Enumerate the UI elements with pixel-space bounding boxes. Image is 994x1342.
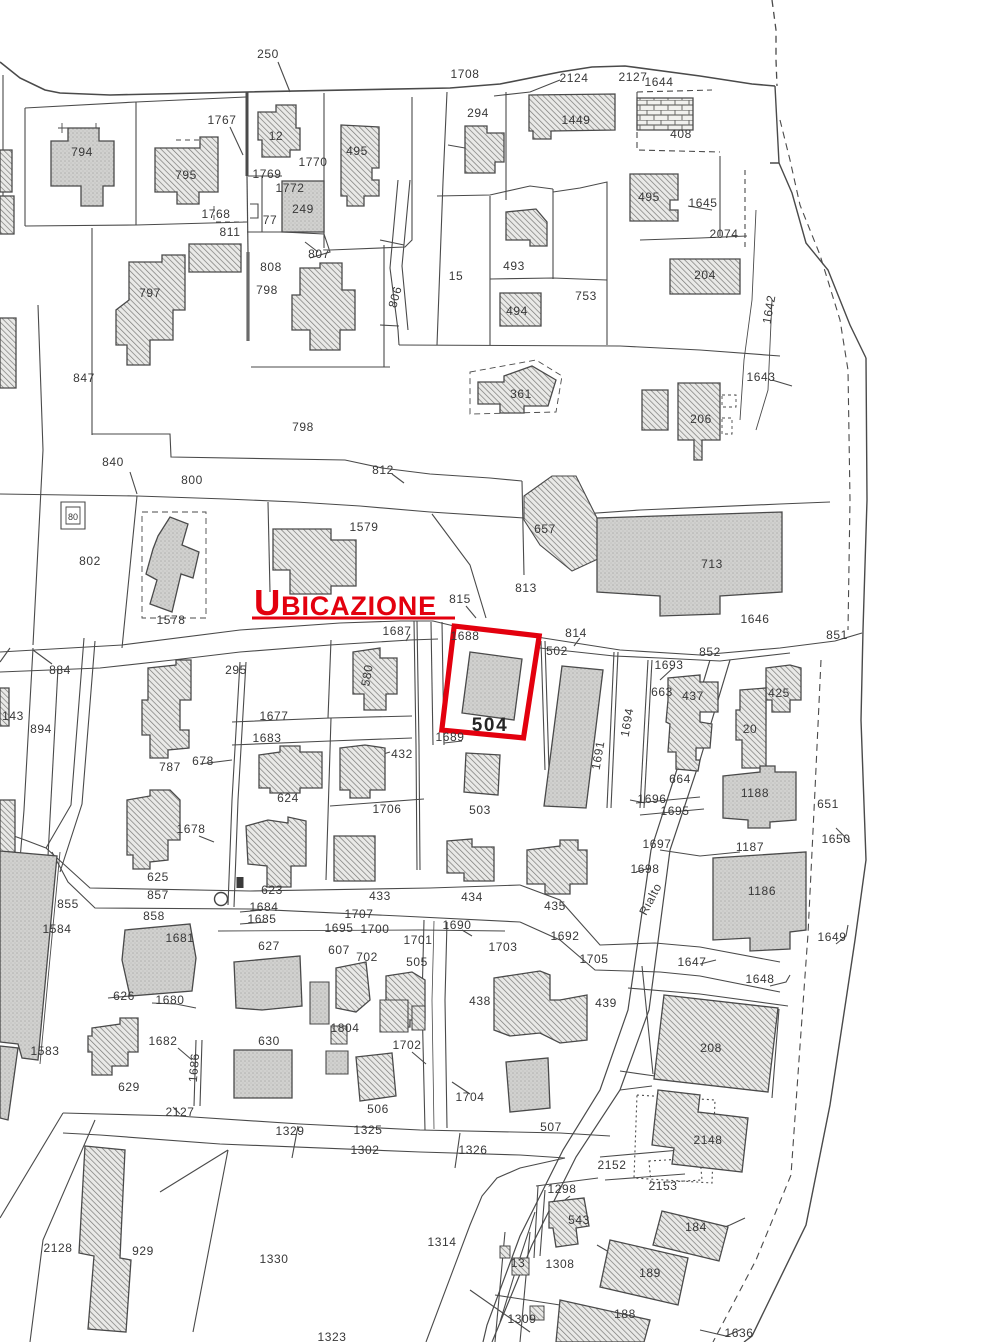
svg-text:1772: 1772 [275,181,304,195]
svg-text:1646: 1646 [740,612,769,626]
svg-text:2127: 2127 [618,70,647,84]
svg-text:1804: 1804 [330,1021,359,1035]
svg-text:493: 493 [503,259,525,273]
svg-text:1650: 1650 [821,832,850,846]
svg-text:1702: 1702 [392,1038,421,1052]
svg-text:1701: 1701 [403,933,432,947]
svg-text:1677: 1677 [259,709,288,723]
svg-text:1649: 1649 [817,930,846,944]
svg-text:858: 858 [143,909,165,923]
svg-text:1767: 1767 [207,113,236,127]
svg-text:208: 208 [700,1041,722,1055]
svg-text:630: 630 [258,1034,280,1048]
svg-text:626: 626 [113,989,135,1003]
svg-text:507: 507 [540,1120,562,1134]
svg-text:2074: 2074 [709,227,738,241]
svg-text:543: 543 [568,1213,590,1227]
svg-text:800: 800 [181,473,203,487]
svg-text:1579: 1579 [349,520,378,534]
svg-text:1323: 1323 [317,1330,346,1342]
svg-text:1692: 1692 [550,929,579,943]
svg-text:852: 852 [699,645,721,659]
svg-text:188: 188 [614,1307,636,1321]
svg-text:1690: 1690 [442,918,471,932]
svg-text:503: 503 [469,803,491,817]
svg-text:250: 250 [257,47,279,61]
svg-text:1309: 1309 [507,1312,536,1326]
svg-text:851: 851 [826,628,848,642]
svg-text:663: 663 [651,685,673,699]
svg-text:12: 12 [269,129,284,143]
svg-text:184: 184 [685,1220,707,1234]
svg-text:1636: 1636 [724,1326,753,1340]
svg-text:502: 502 [546,644,568,658]
svg-text:894: 894 [30,722,52,736]
svg-text:2127: 2127 [165,1105,194,1119]
svg-text:1683: 1683 [252,731,281,745]
svg-text:494: 494 [506,304,528,318]
svg-text:812: 812 [372,463,394,477]
svg-text:1695: 1695 [324,921,353,935]
svg-text:855: 855 [57,897,79,911]
svg-text:1707: 1707 [344,907,373,921]
svg-text:1769: 1769 [252,167,281,181]
svg-text:1686: 1686 [186,1053,202,1083]
svg-text:1687: 1687 [382,624,411,638]
svg-text:15: 15 [449,269,464,283]
svg-text:143: 143 [2,709,24,723]
svg-text:434: 434 [461,890,483,904]
svg-text:840: 840 [102,455,124,469]
svg-text:2148: 2148 [693,1133,722,1147]
svg-text:664: 664 [669,772,691,786]
svg-text:625: 625 [147,870,169,884]
svg-text:713: 713 [701,557,723,571]
svg-text:884: 884 [49,663,71,677]
svg-text:815: 815 [449,592,471,606]
svg-text:1770: 1770 [298,155,327,169]
svg-text:702: 702 [356,950,378,964]
svg-text:1768: 1768 [201,207,230,221]
svg-text:787: 787 [159,760,181,774]
svg-text:1706: 1706 [372,802,401,816]
svg-text:847: 847 [73,371,95,385]
svg-text:2153: 2153 [648,1179,677,1193]
svg-text:1689: 1689 [435,730,464,744]
svg-text:1584: 1584 [42,922,71,936]
svg-text:495: 495 [638,190,660,204]
svg-text:20: 20 [743,722,758,736]
svg-text:206: 206 [690,412,712,426]
svg-text:814: 814 [565,626,587,640]
svg-text:1645: 1645 [688,196,717,210]
svg-text:1703: 1703 [488,940,517,954]
svg-text:802: 802 [79,554,101,568]
svg-text:1688: 1688 [450,629,479,643]
svg-text:657: 657 [534,522,556,536]
svg-text:1326: 1326 [458,1143,487,1157]
svg-text:408: 408 [670,127,692,141]
svg-text:1678: 1678 [176,822,205,836]
svg-text:623: 623 [261,883,283,897]
svg-text:361: 361 [510,387,532,401]
svg-text:678: 678 [192,754,214,768]
svg-text:807: 807 [308,247,330,261]
svg-text:13: 13 [511,1256,526,1270]
svg-text:1188: 1188 [741,786,769,800]
svg-text:1708: 1708 [450,67,479,81]
svg-text:1325: 1325 [353,1123,382,1137]
svg-text:627: 627 [258,939,280,953]
svg-text:80: 80 [68,512,78,522]
svg-text:506: 506 [367,1102,389,1116]
svg-text:651: 651 [817,797,839,811]
svg-text:249: 249 [292,202,314,216]
svg-text:435: 435 [544,899,566,913]
svg-text:1583: 1583 [30,1044,59,1058]
svg-text:811: 811 [220,225,241,239]
svg-text:1308: 1308 [545,1257,574,1271]
svg-text:808: 808 [260,260,282,274]
svg-text:813: 813 [515,581,537,595]
svg-text:439: 439 [595,996,617,1010]
svg-text:437: 437 [682,689,704,703]
svg-text:1697: 1697 [642,837,671,851]
svg-text:797: 797 [139,286,161,300]
svg-text:438: 438 [469,994,491,1008]
svg-text:77: 77 [263,213,278,227]
svg-text:1705: 1705 [579,952,608,966]
svg-text:1329: 1329 [275,1124,304,1138]
svg-text:795: 795 [175,168,197,182]
svg-text:929: 929 [132,1244,154,1258]
svg-text:1700: 1700 [360,922,389,936]
svg-text:753: 753 [575,289,597,303]
svg-text:425: 425 [768,686,790,700]
svg-text:1314: 1314 [427,1235,456,1249]
svg-text:433: 433 [369,889,391,903]
svg-text:495: 495 [346,144,368,158]
svg-text:1682: 1682 [148,1034,177,1048]
svg-text:607: 607 [328,943,350,957]
svg-text:794: 794 [71,145,93,159]
svg-text:1680: 1680 [155,993,184,1007]
svg-text:1698: 1698 [630,862,659,876]
svg-text:1704: 1704 [455,1090,484,1104]
svg-text:629: 629 [118,1080,140,1094]
svg-text:624: 624 [277,791,299,805]
svg-text:857: 857 [147,888,169,902]
svg-text:1685: 1685 [247,912,276,926]
svg-text:294: 294 [467,106,489,120]
svg-text:204: 204 [694,268,716,282]
svg-text:2152: 2152 [597,1158,626,1172]
svg-text:1186: 1186 [748,884,776,898]
svg-text:1187: 1187 [736,840,764,854]
svg-text:504: 504 [472,715,509,736]
svg-text:798: 798 [292,420,314,434]
svg-text:432: 432 [391,747,413,761]
svg-text:505: 505 [406,955,428,969]
svg-text:295: 295 [225,663,247,677]
svg-text:2128: 2128 [43,1241,72,1255]
svg-text:1449: 1449 [561,113,590,127]
svg-text:1681: 1681 [165,931,194,945]
svg-text:189: 189 [639,1266,661,1280]
svg-text:798: 798 [256,283,278,297]
svg-text:2124: 2124 [559,71,588,85]
svg-text:1693: 1693 [654,658,683,672]
svg-text:1330: 1330 [259,1252,288,1266]
svg-text:1648: 1648 [745,972,774,986]
svg-text:1298: 1298 [547,1182,576,1196]
svg-text:1647: 1647 [677,955,706,969]
svg-text:1695: 1695 [660,804,689,818]
svg-text:1643: 1643 [746,370,775,384]
svg-text:1578: 1578 [156,613,185,627]
svg-text:1644: 1644 [644,75,673,89]
svg-text:1302: 1302 [350,1143,379,1157]
